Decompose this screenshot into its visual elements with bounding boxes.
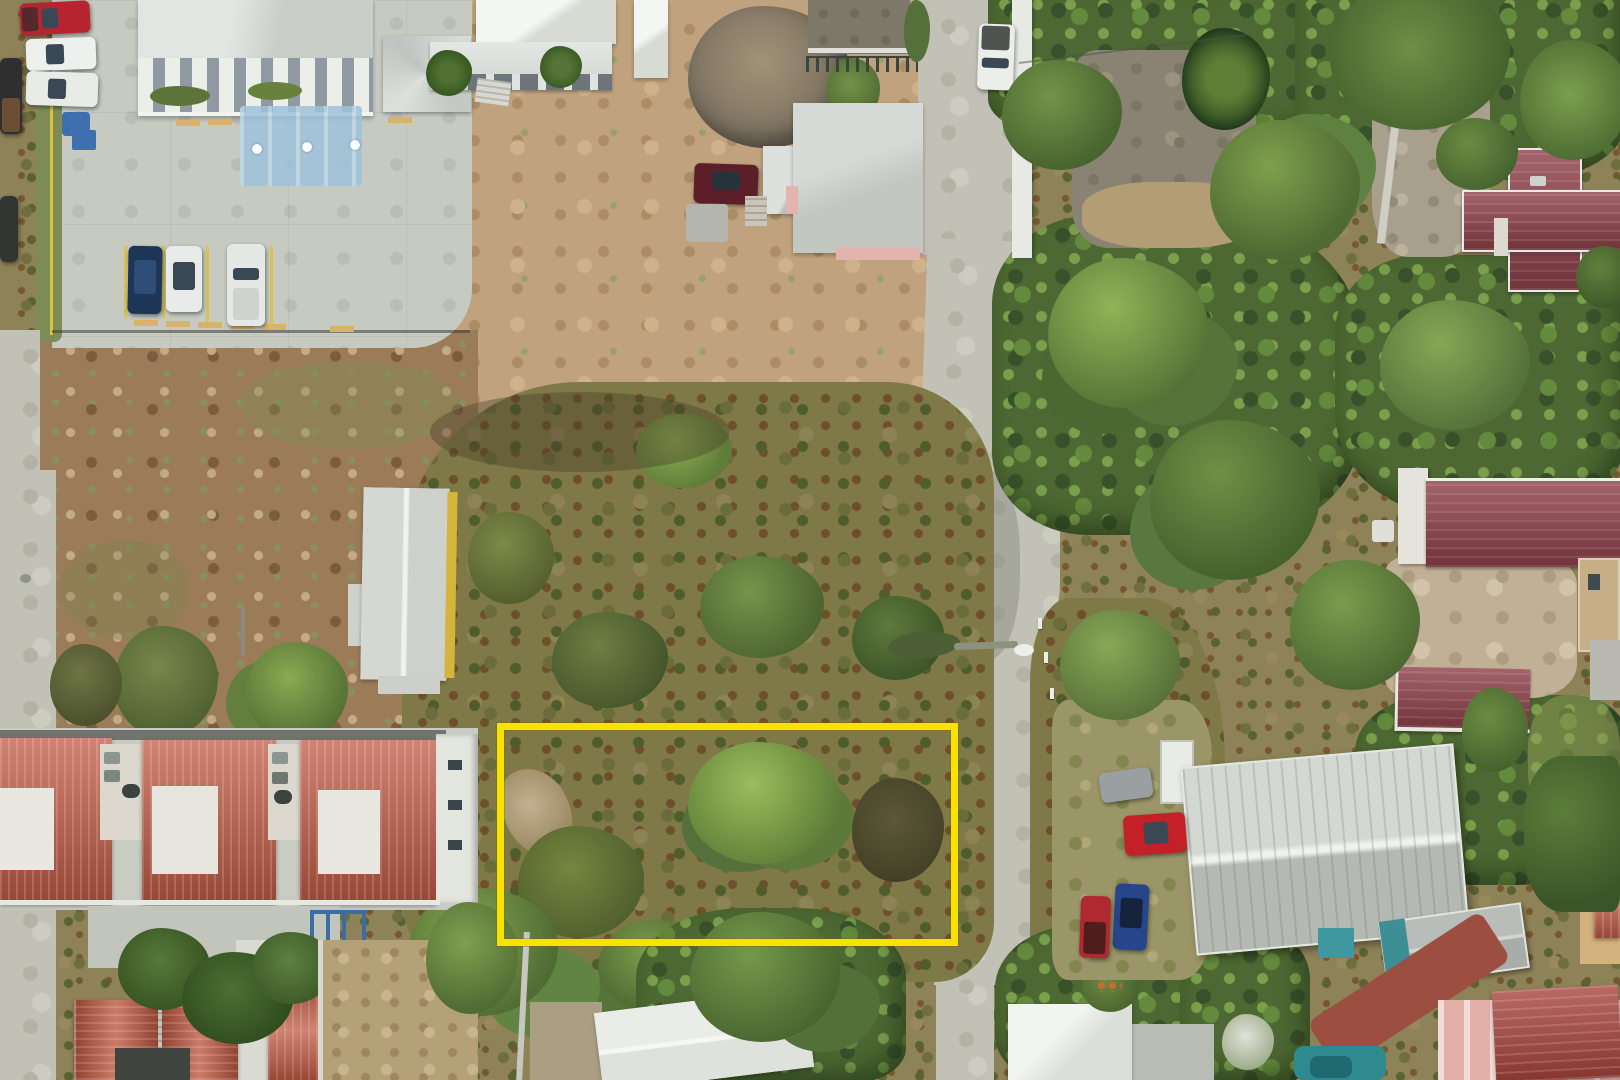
dark-blue-suv [127,246,162,315]
red-pickup-south [1079,895,1111,958]
flat-roof-patch [318,790,380,874]
tan-house [1578,558,1620,652]
building-pad [378,676,440,694]
pink-porch [786,186,798,214]
fence-line [52,330,470,333]
wheelchair-symbol [350,140,360,150]
ac-unit [272,772,288,784]
pink-building-red-roof [1492,985,1620,1080]
long-red-house-roof [1426,478,1620,567]
white-truck [977,23,1015,90]
garden-curb [808,48,910,53]
end-window [448,760,462,770]
dark-roof-panels [115,1048,190,1080]
ac-unit [104,752,120,764]
grass-haze [60,540,190,640]
white-hip-roof-house [1008,1004,1132,1080]
corner-trees [1524,756,1620,912]
end-window [448,840,462,850]
pool-water [1310,1056,1352,1078]
dark-blue-car [1112,883,1149,951]
parking-stripe [162,246,165,318]
white-pickup [227,244,265,326]
grass-haze [240,360,460,450]
trash-bins [62,112,90,136]
gravel-garden [808,0,910,54]
left-road [0,330,40,490]
wheelchair-symbol [302,142,312,152]
white-car [25,71,98,107]
white-parapet [1398,468,1428,564]
ac-unit [272,752,288,764]
wheelchair-symbol [252,144,262,154]
parking-bumper [198,322,222,328]
parking-stripe [206,246,209,322]
yellow-trim-building-roof [360,487,449,680]
dirt-pad [530,1002,602,1080]
cross-house-wing-ew [1462,190,1620,252]
fence-post [1038,618,1042,629]
parking-stripe [270,246,273,326]
pipe-line [241,608,245,656]
tan-house-window [1588,574,1600,590]
ac-unit [122,784,140,798]
manhole [20,574,31,583]
canopy-lump [1210,120,1360,260]
driveway [1128,1024,1214,1080]
house-steps [745,196,767,226]
teal-wall-bit [1318,928,1354,958]
ac-unit [274,790,292,804]
flat-roof-patch [152,786,218,874]
canopy-lump [1150,420,1320,580]
stairs [474,78,511,106]
grass-strip [36,92,62,342]
white-car [25,37,96,71]
pink-wall [836,247,920,260]
gable-building-roof [476,0,616,44]
scrub-shadow [430,392,730,472]
fence-post [1044,652,1048,663]
white-sliver-building [634,0,668,78]
parking-bumper [330,326,354,332]
parking-bumper [176,120,200,126]
gray-annex [1590,640,1620,700]
dark-truck [0,58,22,134]
white-wall-bit [1494,218,1508,256]
parking-bumper [388,117,412,123]
ac-unit [104,770,120,782]
white-utility-box [1372,520,1394,542]
red-pickup [19,0,91,36]
eave-line [0,900,440,905]
white-suv [166,246,202,312]
parking-bumper [166,321,190,327]
flat-roof-patch [0,788,54,870]
colonnade-building-roof [138,0,373,58]
parking-bumper [134,320,158,326]
rooftop-vent [1530,176,1546,186]
canopy-lump [1520,40,1620,160]
street-lamp-head [1014,644,1034,656]
red-hatchback [1123,812,1188,856]
aerial-photo [0,0,1620,1080]
yellow-curb [50,95,53,335]
pink-house-main-roof [793,103,923,253]
property-boundary-box [497,723,958,946]
yard-wall [318,940,323,1080]
dark-truck [0,196,18,262]
parking-bumper [262,324,286,330]
end-window [448,800,462,810]
concrete-pad [686,204,728,242]
iron-fence [806,56,918,72]
fence-post [1050,688,1054,699]
parking-bumper [208,119,232,125]
